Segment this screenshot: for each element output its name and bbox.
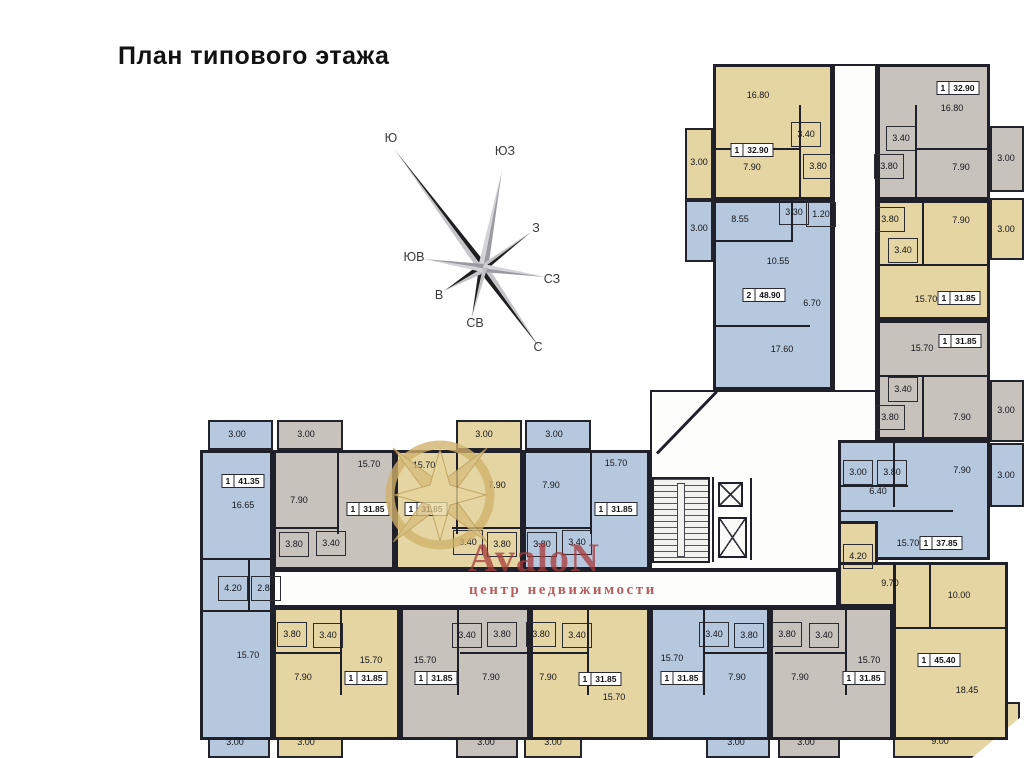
balcony-area-label: 3.00 <box>997 470 1015 480</box>
badge-total-area: 31.85 <box>357 672 386 684</box>
wall-segment <box>452 527 523 529</box>
room-area-label: 7.90 <box>743 162 761 172</box>
balcony-area-label: 3.00 <box>690 157 708 167</box>
badge-total-area: 31.85 <box>359 503 388 515</box>
balcony-area-label: 3.00 <box>997 224 1015 234</box>
wall-segment <box>275 652 340 654</box>
wall-segment <box>893 627 1007 629</box>
wall-segment <box>791 200 793 240</box>
room-area-label: 1.20 <box>812 209 830 219</box>
room-area-label: 7.90 <box>542 480 560 490</box>
balcony-area-label: 3.00 <box>545 429 563 439</box>
room-area-label: 3.80 <box>740 630 758 640</box>
floor-plan: 3.003.003.003.003.003.009.003.003.003.00… <box>0 0 1024 758</box>
room-area-label: 10.00 <box>948 590 971 600</box>
wall-segment <box>915 105 917 200</box>
room-area-label: 7.90 <box>488 480 506 490</box>
room-area-label: 7.90 <box>539 672 557 682</box>
badge-room-count: 1 <box>595 503 607 515</box>
wall-segment <box>838 510 953 512</box>
room-area-label: 7.90 <box>953 412 971 422</box>
room-area-label: 18.45 <box>956 685 979 695</box>
compass-label: С <box>533 340 542 354</box>
badge-room-count: 1 <box>347 503 359 515</box>
wall-segment <box>705 652 770 654</box>
wall-segment <box>877 375 990 377</box>
compass-label: СЗ <box>544 272 560 286</box>
room-area-label: 3.40 <box>568 630 586 640</box>
room-area-label: 15.70 <box>915 294 938 304</box>
room-area-label: 3.40 <box>458 630 476 640</box>
wall-segment <box>340 607 342 695</box>
room-area-label: 3.40 <box>815 630 833 640</box>
stairs-rail <box>677 483 685 557</box>
badge-total-area: 31.85 <box>607 503 636 515</box>
room-area-label: 3.40 <box>319 630 337 640</box>
apartment-badge: 131.85 <box>404 502 447 516</box>
room-area-label: 15.70 <box>414 655 437 665</box>
badge-total-area: 31.85 <box>950 292 979 304</box>
room-area-label: 15.70 <box>605 458 628 468</box>
room-area-label: 15.70 <box>360 655 383 665</box>
wall-segment <box>590 450 592 534</box>
apartment-badge: 131.85 <box>594 502 637 516</box>
badge-total-area: 45.40 <box>930 654 959 666</box>
compass-label: В <box>435 288 443 302</box>
elevator <box>718 482 743 507</box>
badge-total-area: 31.85 <box>427 672 456 684</box>
wall-segment <box>248 560 250 610</box>
room-area-label: 16.80 <box>941 103 964 113</box>
compass-label: ЮВ <box>404 250 425 264</box>
badge-total-area: 31.85 <box>673 672 702 684</box>
apartment-badge: 137.85 <box>919 536 962 550</box>
room-area-label: 10.55 <box>767 256 790 266</box>
badge-room-count: 1 <box>345 672 357 684</box>
room-area-label: 3.80 <box>285 539 303 549</box>
room-area-label: 3.40 <box>322 538 340 548</box>
badge-total-area: 31.85 <box>417 503 446 515</box>
room-area-label: 3.80 <box>778 629 796 639</box>
compass-label: З <box>532 221 540 235</box>
apartment-badge: 131.85 <box>937 291 980 305</box>
room-area-label: 7.90 <box>952 162 970 172</box>
badge-room-count: 1 <box>222 475 234 487</box>
wall-segment <box>200 558 273 560</box>
room-area-label: 7.90 <box>290 495 308 505</box>
badge-total-area: 31.85 <box>591 673 620 685</box>
apartment-badge: 248.90 <box>742 288 785 302</box>
room-area-label: 4.20 <box>224 583 242 593</box>
room-area-label: 3.40 <box>892 133 910 143</box>
balcony-area-label: 3.00 <box>997 405 1015 415</box>
balcony-area-label: 3.00 <box>727 737 745 747</box>
wall-segment <box>929 562 931 627</box>
room-area-label: 3.80 <box>493 539 511 549</box>
elevator <box>718 517 747 558</box>
room-area-label: 3.80 <box>533 539 551 549</box>
room-area-label: 15.70 <box>237 650 260 660</box>
balcony-area-label: 3.00 <box>797 737 815 747</box>
room-area-label: 3.40 <box>459 537 477 547</box>
apartment-badge: 141.35 <box>221 474 264 488</box>
room-area-label: 15.70 <box>897 538 920 548</box>
badge-room-count: 1 <box>415 672 427 684</box>
room-area-label: 17.60 <box>771 344 794 354</box>
room-area-label: 3.80 <box>883 467 901 477</box>
wall-segment <box>915 148 990 150</box>
room-area-label: 3.80 <box>881 214 899 224</box>
wall-segment <box>530 652 587 654</box>
room-area-label: 3.80 <box>880 161 898 171</box>
badge-room-count: 1 <box>920 537 932 549</box>
room-area-label: 6.70 <box>803 298 821 308</box>
badge-room-count: 1 <box>579 673 591 685</box>
apartment-badge: 131.85 <box>842 671 885 685</box>
badge-room-count: 1 <box>405 503 417 515</box>
wall-segment <box>799 105 801 200</box>
room-area-label: 7.90 <box>294 672 312 682</box>
room-area-label: 16.65 <box>232 500 255 510</box>
wall-segment <box>273 527 337 529</box>
compass-label: СВ <box>466 316 483 330</box>
room-area-label: 3.80 <box>809 161 827 171</box>
room-area-label: 2.80 <box>257 583 275 593</box>
balcony-area-label: 3.00 <box>228 429 246 439</box>
compass-label: Ю <box>385 131 398 145</box>
room-area-label: 3.80 <box>881 412 899 422</box>
room-area-label: 3.40 <box>894 245 912 255</box>
badge-room-count: 1 <box>939 335 951 347</box>
apartment-badge: 131.85 <box>660 671 703 685</box>
apartment-badge: 132.90 <box>936 81 979 95</box>
compass-label: ЮЗ <box>495 144 515 158</box>
apartment-badge: 131.85 <box>344 671 387 685</box>
apartment-badge: 132.90 <box>730 143 773 157</box>
wall-segment <box>922 375 924 440</box>
apartment-badge: 131.85 <box>346 502 389 516</box>
balcony-area-label: 3.00 <box>475 429 493 439</box>
wall-segment <box>525 527 590 529</box>
balcony-area-label: 3.00 <box>297 737 315 747</box>
room-area-label: 7.90 <box>952 215 970 225</box>
balcony-area-label: 3.00 <box>297 429 315 439</box>
badge-total-area: 31.85 <box>855 672 884 684</box>
badge-total-area: 31.85 <box>951 335 980 347</box>
apartment-badge: 145.40 <box>917 653 960 667</box>
room-area-label: 15.70 <box>413 460 436 470</box>
room-area-label: 8.55 <box>731 214 749 224</box>
apartment-region <box>893 562 1008 740</box>
badge-room-count: 2 <box>743 289 755 301</box>
room-area-label: 3.40 <box>705 629 723 639</box>
page-title: План типового этажа <box>118 42 389 71</box>
room-area-label: 3.80 <box>283 629 301 639</box>
room-area-label: 15.70 <box>858 655 881 665</box>
badge-room-count: 1 <box>937 82 949 94</box>
room-area-label: 3.40 <box>894 384 912 394</box>
room-area-label: 9.70 <box>881 578 899 588</box>
room-area-label: 3.80 <box>532 629 550 639</box>
room-area-label: 16.80 <box>747 90 770 100</box>
room-area-label: 7.90 <box>728 672 746 682</box>
balcony-area-label: 3.00 <box>226 737 244 747</box>
room-area-label: 7.90 <box>953 465 971 475</box>
balcony-area-label: 3.00 <box>690 223 708 233</box>
apartment-badge: 131.85 <box>938 334 981 348</box>
room-area-label: 15.70 <box>603 692 626 702</box>
wall-segment <box>922 200 924 264</box>
corridor <box>273 570 838 607</box>
room-area-label: 4.20 <box>849 551 867 561</box>
badge-room-count: 1 <box>938 292 950 304</box>
badge-room-count: 1 <box>843 672 855 684</box>
badge-total-area: 32.90 <box>743 144 772 156</box>
room-area-label: 15.70 <box>358 459 381 469</box>
badge-total-area: 37.85 <box>932 537 961 549</box>
wall-segment <box>713 325 810 327</box>
wall-segment <box>337 450 339 534</box>
wall-segment <box>877 264 990 266</box>
wall-segment <box>713 240 793 242</box>
balcony-area-label: 3.00 <box>544 737 562 747</box>
room-area-label: 3.80 <box>493 629 511 639</box>
room-area-label: 3.30 <box>785 207 803 217</box>
room-area-label: 7.90 <box>791 672 809 682</box>
badge-total-area: 32.90 <box>949 82 978 94</box>
balcony-area-label: 9.00 <box>931 736 949 746</box>
room-area-label: 3.40 <box>797 129 815 139</box>
wall-segment <box>750 478 752 560</box>
room-area-label: 6.40 <box>869 486 887 496</box>
badge-total-area: 48.90 <box>755 289 784 301</box>
badge-room-count: 1 <box>661 672 673 684</box>
balcony-area-label: 3.00 <box>997 153 1015 163</box>
room-area-label: 15.70 <box>661 653 684 663</box>
wall-segment <box>456 450 458 534</box>
badge-total-area: 41.35 <box>234 475 263 487</box>
wall-segment <box>775 652 845 654</box>
balcony-area-label: 3.00 <box>477 737 495 747</box>
badge-room-count: 1 <box>918 654 930 666</box>
wall-segment <box>712 477 714 562</box>
apartment-badge: 131.85 <box>414 671 457 685</box>
room-area-label: 3.00 <box>849 467 867 477</box>
wall-segment <box>200 610 273 612</box>
room-area-label: 3.40 <box>568 537 586 547</box>
room-area-label: 7.90 <box>482 672 500 682</box>
apartment-badge: 131.85 <box>578 672 621 686</box>
badge-room-count: 1 <box>731 144 743 156</box>
wall-segment <box>460 652 530 654</box>
room-area-label: 15.70 <box>911 343 934 353</box>
